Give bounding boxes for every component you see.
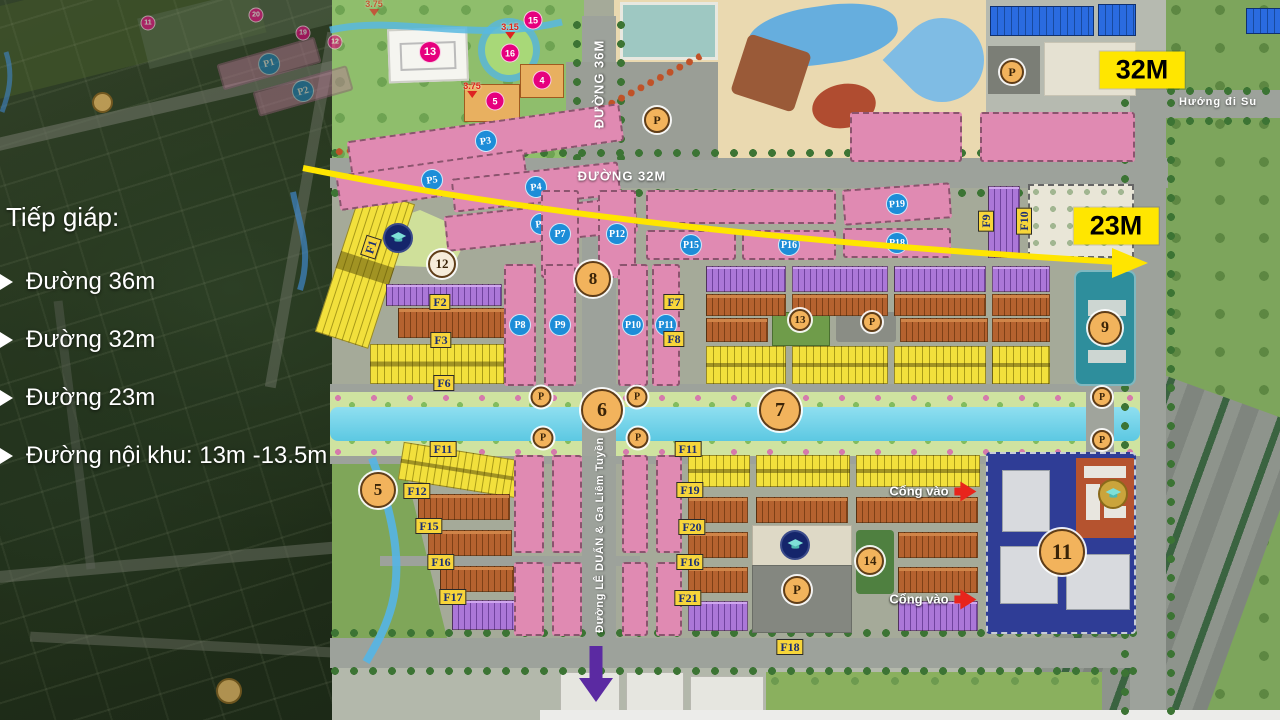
direction-sign-label: Hướng đi Su xyxy=(1179,96,1257,108)
canal-bridge xyxy=(1086,392,1114,456)
pocket-park-14 xyxy=(856,530,894,594)
school-building xyxy=(1104,506,1126,518)
school-plaza-south xyxy=(752,525,852,567)
apartment-building xyxy=(1000,546,1058,604)
solar-roof-building xyxy=(990,6,1094,36)
aerial-landmark-dot xyxy=(216,678,242,704)
aerial-photo-panel: Tiếp giáp: Đường 36m Đường 32m Đường 23m… xyxy=(0,0,332,720)
solar-roof-building xyxy=(1098,4,1136,36)
adjacency-bullet-list: Đường 36m Đường 32m Đường 23m Đường nội … xyxy=(6,267,327,471)
bullet-text: Đường nội khu: 13m -13.5m xyxy=(26,441,327,471)
adjacency-bullet-item: Đường 32m xyxy=(6,325,327,355)
building-slab xyxy=(1088,350,1126,363)
building-slab xyxy=(1088,300,1126,316)
adjacency-bullet-item: Đường 36m xyxy=(6,267,327,297)
parking-lot-small xyxy=(836,312,896,342)
tree-row xyxy=(1166,60,1177,720)
pocket-park-13 xyxy=(772,312,830,346)
canal-water xyxy=(330,407,1140,441)
teal-facility-block-9 xyxy=(1074,270,1136,386)
clubhouse-building xyxy=(387,27,469,84)
reserved-plot xyxy=(1028,184,1134,258)
bullet-arrow-icon xyxy=(0,274,13,290)
road-canal-north xyxy=(330,384,1140,392)
school-sub-block xyxy=(1076,458,1134,538)
mixed-use-block-11 xyxy=(986,452,1136,634)
school-building xyxy=(1084,466,1126,478)
bullet-text: Đường 32m xyxy=(26,325,155,355)
bullet-arrow-icon xyxy=(0,332,13,348)
wave-pool xyxy=(620,2,718,60)
road-f18 xyxy=(330,638,1140,668)
school-building xyxy=(1086,484,1100,520)
bullet-text: Đường 23m xyxy=(26,383,155,413)
bullet-text: Đường 36m xyxy=(26,267,155,297)
adjacency-bullet-item: Đường nội khu: 13m -13.5m xyxy=(6,441,327,471)
apartment-building xyxy=(1002,470,1050,532)
bullet-arrow-icon xyxy=(0,448,13,464)
tree-row xyxy=(330,188,1130,199)
adjacency-bullet-item: Đường 23m xyxy=(6,383,327,413)
tree-row xyxy=(330,666,1140,677)
aerial-landmark-dot xyxy=(92,92,113,113)
adjacency-title: Tiếp giáp: xyxy=(6,202,327,233)
pavilion-cluster xyxy=(464,84,520,122)
parking-lot-south xyxy=(752,565,852,633)
street-label-32m: ĐƯỜNG 32M xyxy=(578,169,667,184)
bullet-arrow-icon xyxy=(0,390,13,406)
masterplan-slide: P3 P5 P4 P6 P7 P12 P19 P15 P16 P18 xyxy=(0,0,1280,720)
street-label-le-duan: Đường LÊ DUẨN & Ga Liêm Tuyền xyxy=(594,437,606,633)
central-canal xyxy=(330,392,1140,456)
adjacency-text-block: Tiếp giáp: Đường 36m Đường 32m Đường 23m… xyxy=(6,202,327,471)
parking-structure xyxy=(988,46,1040,94)
tree-row xyxy=(1166,116,1280,127)
pavilion-cluster xyxy=(520,64,564,98)
building-outline xyxy=(400,41,457,71)
solar-roof-building xyxy=(1246,8,1280,34)
street-label-36m: ĐƯỜNG 36M xyxy=(592,40,607,129)
commercial-pad xyxy=(1044,42,1136,96)
apartment-building xyxy=(1066,554,1130,610)
